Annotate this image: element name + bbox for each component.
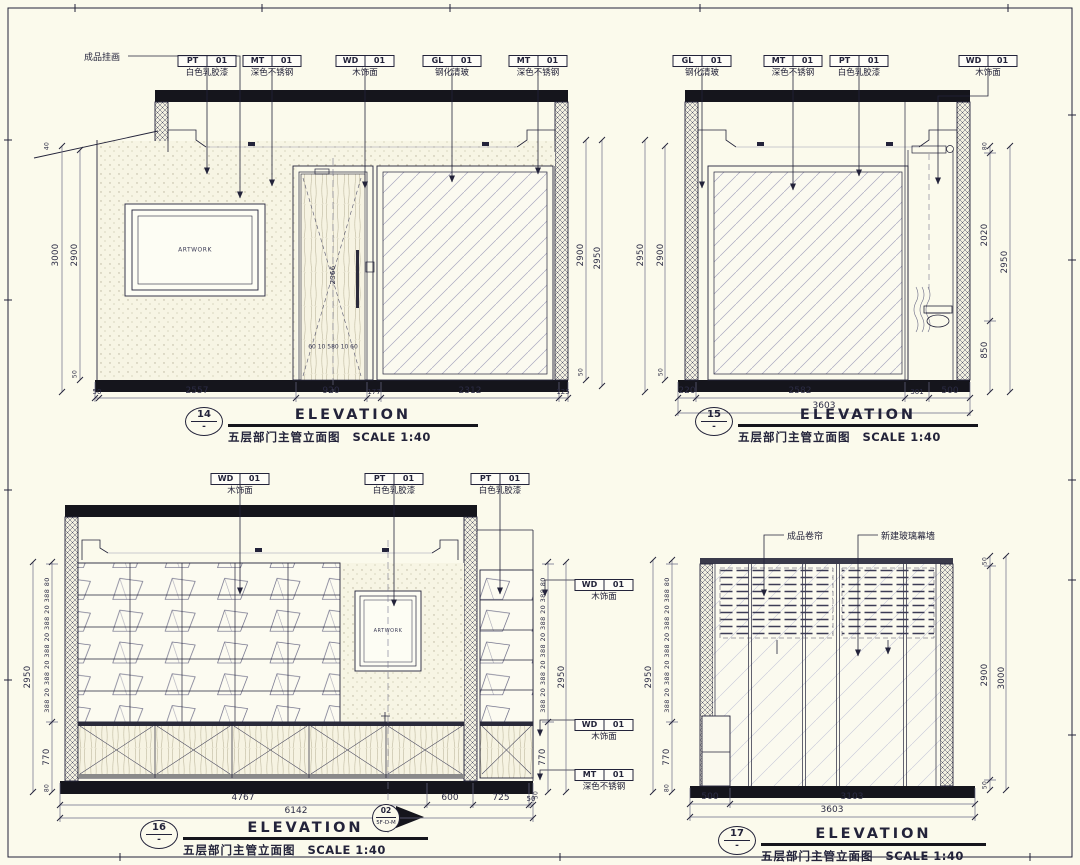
dim-label: 725 [492,793,509,803]
dim-label: 301 [910,388,923,396]
material-tag: WD01 木饰面 [211,466,270,496]
title-rule [738,424,978,427]
dim-label: 770 [42,748,52,765]
title-subtitle: 五层部门主管立面图 [761,849,874,863]
material-tag-box: WD01 [575,579,634,591]
dim-label: 2020 [980,224,990,247]
dim-label: 50 [982,781,989,789]
title-elevation: ELEVATION [761,826,986,842]
view-number-circle: 14 - [185,407,223,436]
dim-label: 50 [527,795,536,803]
material-tag-box: MT01 [575,769,634,781]
tag-idx: 01 [394,474,423,484]
detail-symbol: 02 5F-D-M [372,804,400,832]
title-subtitle: 五层部门主管立面图 [738,430,851,444]
material-tag-box: PT01 [471,473,530,485]
title-subtitle: 五层部门主管立面图 [183,843,296,857]
tag-desc: 木饰面 [575,592,634,602]
tag-idx: 01 [988,56,1017,66]
dim-label: 2900 [656,244,666,267]
title-rule [228,424,478,427]
tag-idx: 01 [452,56,481,66]
artwork-label: ARTWORK [374,628,403,634]
tag-desc: 木饰面 [575,732,634,742]
title-elevation: ELEVATION [228,407,478,423]
tag-code: WD [960,56,988,66]
view-number-circle: 15 - [695,407,733,436]
tag-desc: 白色乳胶漆 [830,68,889,78]
tag-desc: 白色乳胶漆 [365,486,424,496]
view-number: 14 [191,408,217,422]
p17-linework [650,535,1009,821]
tag-code: WD [212,474,240,484]
material-tag: WD01 木饰面 [336,48,395,78]
dim-label: 2366 [329,265,337,284]
p16-linework [30,484,575,833]
material-tag: MT01 深色不锈钢 [764,48,823,78]
dim-label: 2900 [980,664,990,687]
material-tag: MT01 深色不锈钢 [509,48,568,78]
material-tag-box: PT01 [365,473,424,485]
drawing-sheet: { "common": { "elevation": "ELEVATION", … [0,0,1080,865]
dim-stack-label: 388 20 388 20 388 20 388 20 388 80 [663,577,671,713]
view-number-circle: 17 - [718,826,756,855]
view-sub: - [735,841,739,852]
view-number: 17 [724,827,750,841]
tag-desc: 深色不锈钢 [575,782,634,792]
dim-label: 3000 [997,667,1007,690]
dim-label: 60 10 580 10 60 [308,344,358,351]
tag-code: PT [472,474,500,484]
dim-label: 2950 [636,244,646,267]
dim-label: 2950 [644,666,654,689]
material-tag: MT01 深色不锈钢 [575,762,634,792]
dim-label: 500 [941,386,958,396]
tag-idx: 01 [859,56,888,66]
tag-code: GL [674,56,702,66]
tag-idx: 01 [604,580,633,590]
title-rule [761,843,986,846]
title-scale: SCALE 1:40 [863,430,941,444]
material-tag: GL01 钢化清玻 [423,48,482,78]
dim-label: 2950 [1000,251,1010,274]
artwork-label: ARTWORK [178,247,212,254]
view-sub: - [202,422,206,433]
tag-idx: 01 [272,56,301,66]
tag-code: MT [765,56,793,66]
dim-label: 80 [664,784,671,792]
tag-desc: 深色不锈钢 [509,68,568,78]
p15-linework [642,68,1013,416]
dim-label: 770 [538,748,548,765]
material-tag: WD01 木饰面 [959,48,1018,78]
material-tag-box: MT01 [243,55,302,67]
dim-label: 220 [678,386,695,396]
dim-label: 50 [658,368,665,376]
dim-stack-label: 388 20 388 20 388 20 388 20 388 80 [43,577,51,713]
dim-label: 2312 [459,386,482,396]
dim-label: 6142 [285,806,308,816]
tag-code: MT [576,770,604,780]
material-tag-box: PT01 [830,55,889,67]
tag-desc: 钢化清玻 [673,68,732,78]
title-scale: SCALE 1:40 [886,849,964,863]
tag-idx: 01 [240,474,269,484]
dim-label: 2557 [186,386,209,396]
dim-label: 2900 [70,244,80,267]
material-tag: WD01 木饰面 [575,572,634,602]
dim-label: 600 [441,793,458,803]
view-number: 16 [146,821,172,835]
dim-label: 40 [44,142,51,150]
dim-label: 2950 [557,666,567,689]
p14-title-block: 14 - ELEVATION 五层部门主管立面图SCALE 1:40 [185,407,478,445]
material-tag: PT01 白色乳胶漆 [365,466,424,496]
tag-code: PT [179,56,207,66]
tag-code: MT [510,56,538,66]
tag-desc: 木饰面 [336,68,395,78]
material-tag-box: PT01 [178,55,237,67]
view-number: 15 [701,408,727,422]
dim-label: 50 [982,557,989,565]
detail-ref: 5F-D-M [376,818,396,828]
tag-desc: 深色不锈钢 [243,68,302,78]
tag-code: WD [576,720,604,730]
material-tag-box: WD01 [959,55,1018,67]
tag-idx: 01 [538,56,567,66]
material-tag-box: WD01 [575,719,634,731]
detail-number: 02 [376,805,396,818]
tag-desc: 白色乳胶漆 [471,486,530,496]
dim-label: 770 [662,748,672,765]
dim-label: 50 [72,370,79,378]
tag-code: WD [576,580,604,590]
tag-code: WD [337,56,365,66]
material-tag-box: WD01 [211,473,270,485]
title-rule [183,837,428,840]
dim-label: 3000 [51,244,61,267]
tag-idx: 01 [793,56,822,66]
tag-code: GL [424,56,452,66]
tag-desc: 木饰面 [211,486,270,496]
dim-label: 50 [578,368,585,376]
tag-idx: 01 [500,474,529,484]
p15-title-block: 15 - ELEVATION 五层部门主管立面图SCALE 1:40 [695,407,978,445]
dim-label: 2950 [593,247,603,270]
title-elevation: ELEVATION [738,407,978,423]
tag-idx: 01 [604,770,633,780]
dim-label: 3103 [841,792,864,802]
dim-label: 920 [322,386,339,396]
view-number-circle: 16 - [140,820,178,849]
p17-title-block: 17 - ELEVATION 五层部门主管立面图SCALE 1:40 [718,826,986,864]
tag-idx: 01 [604,720,633,730]
tag-desc: 木饰面 [959,68,1018,78]
tag-desc: 钢化清玻 [423,68,482,78]
tag-idx: 01 [702,56,731,66]
tag-desc: 深色不锈钢 [764,68,823,78]
material-tag-box: MT01 [764,55,823,67]
material-tag-box: GL01 [673,55,732,67]
dim-label: 50 [93,388,102,396]
dim-label: 177 [367,388,380,396]
view-sub: - [157,835,161,846]
dim-stack-label: 388 20 388 20 388 20 388 20 388 80 [539,577,547,713]
tag-idx: 01 [207,56,236,66]
dim-label: 850 [980,341,990,358]
material-tag-box: MT01 [509,55,568,67]
dim-label: 500 [701,792,718,802]
title-scale: SCALE 1:40 [353,430,431,444]
p17-leader-curtainwall: 新建玻璃幕墙 [881,529,935,542]
material-tag-box: GL01 [423,55,482,67]
dim-label: 80 [982,142,989,150]
material-tag: MT01 深色不锈钢 [243,48,302,78]
dim-label: 3603 [821,805,844,815]
dim-label: 2950 [23,666,33,689]
material-tag: PT01 白色乳胶漆 [178,48,237,78]
material-tag: PT01 白色乳胶漆 [471,466,530,496]
material-tag: PT01 白色乳胶漆 [830,48,889,78]
material-tag: WD01 木饰面 [575,712,634,742]
dim-label: 2582 [789,386,812,396]
view-sub: - [712,422,716,433]
dim-label: 80 [44,784,51,792]
p14-leader-artwork: 成品挂画 [84,50,120,63]
title-scale: SCALE 1:40 [308,843,386,857]
dim-label: 2900 [576,244,586,267]
material-tag: GL01 钢化清玻 [673,48,732,78]
tag-desc: 白色乳胶漆 [178,68,237,78]
material-tag-box: WD01 [336,55,395,67]
dim-label: 4767 [232,793,255,803]
tag-code: MT [244,56,272,66]
title-subtitle: 五层部门主管立面图 [228,430,341,444]
p17-leader-blind: 成品卷帘 [787,529,823,542]
tag-idx: 01 [365,56,394,66]
tag-code: PT [366,474,394,484]
tag-code: PT [831,56,859,66]
dim-label: 125 [556,388,569,396]
